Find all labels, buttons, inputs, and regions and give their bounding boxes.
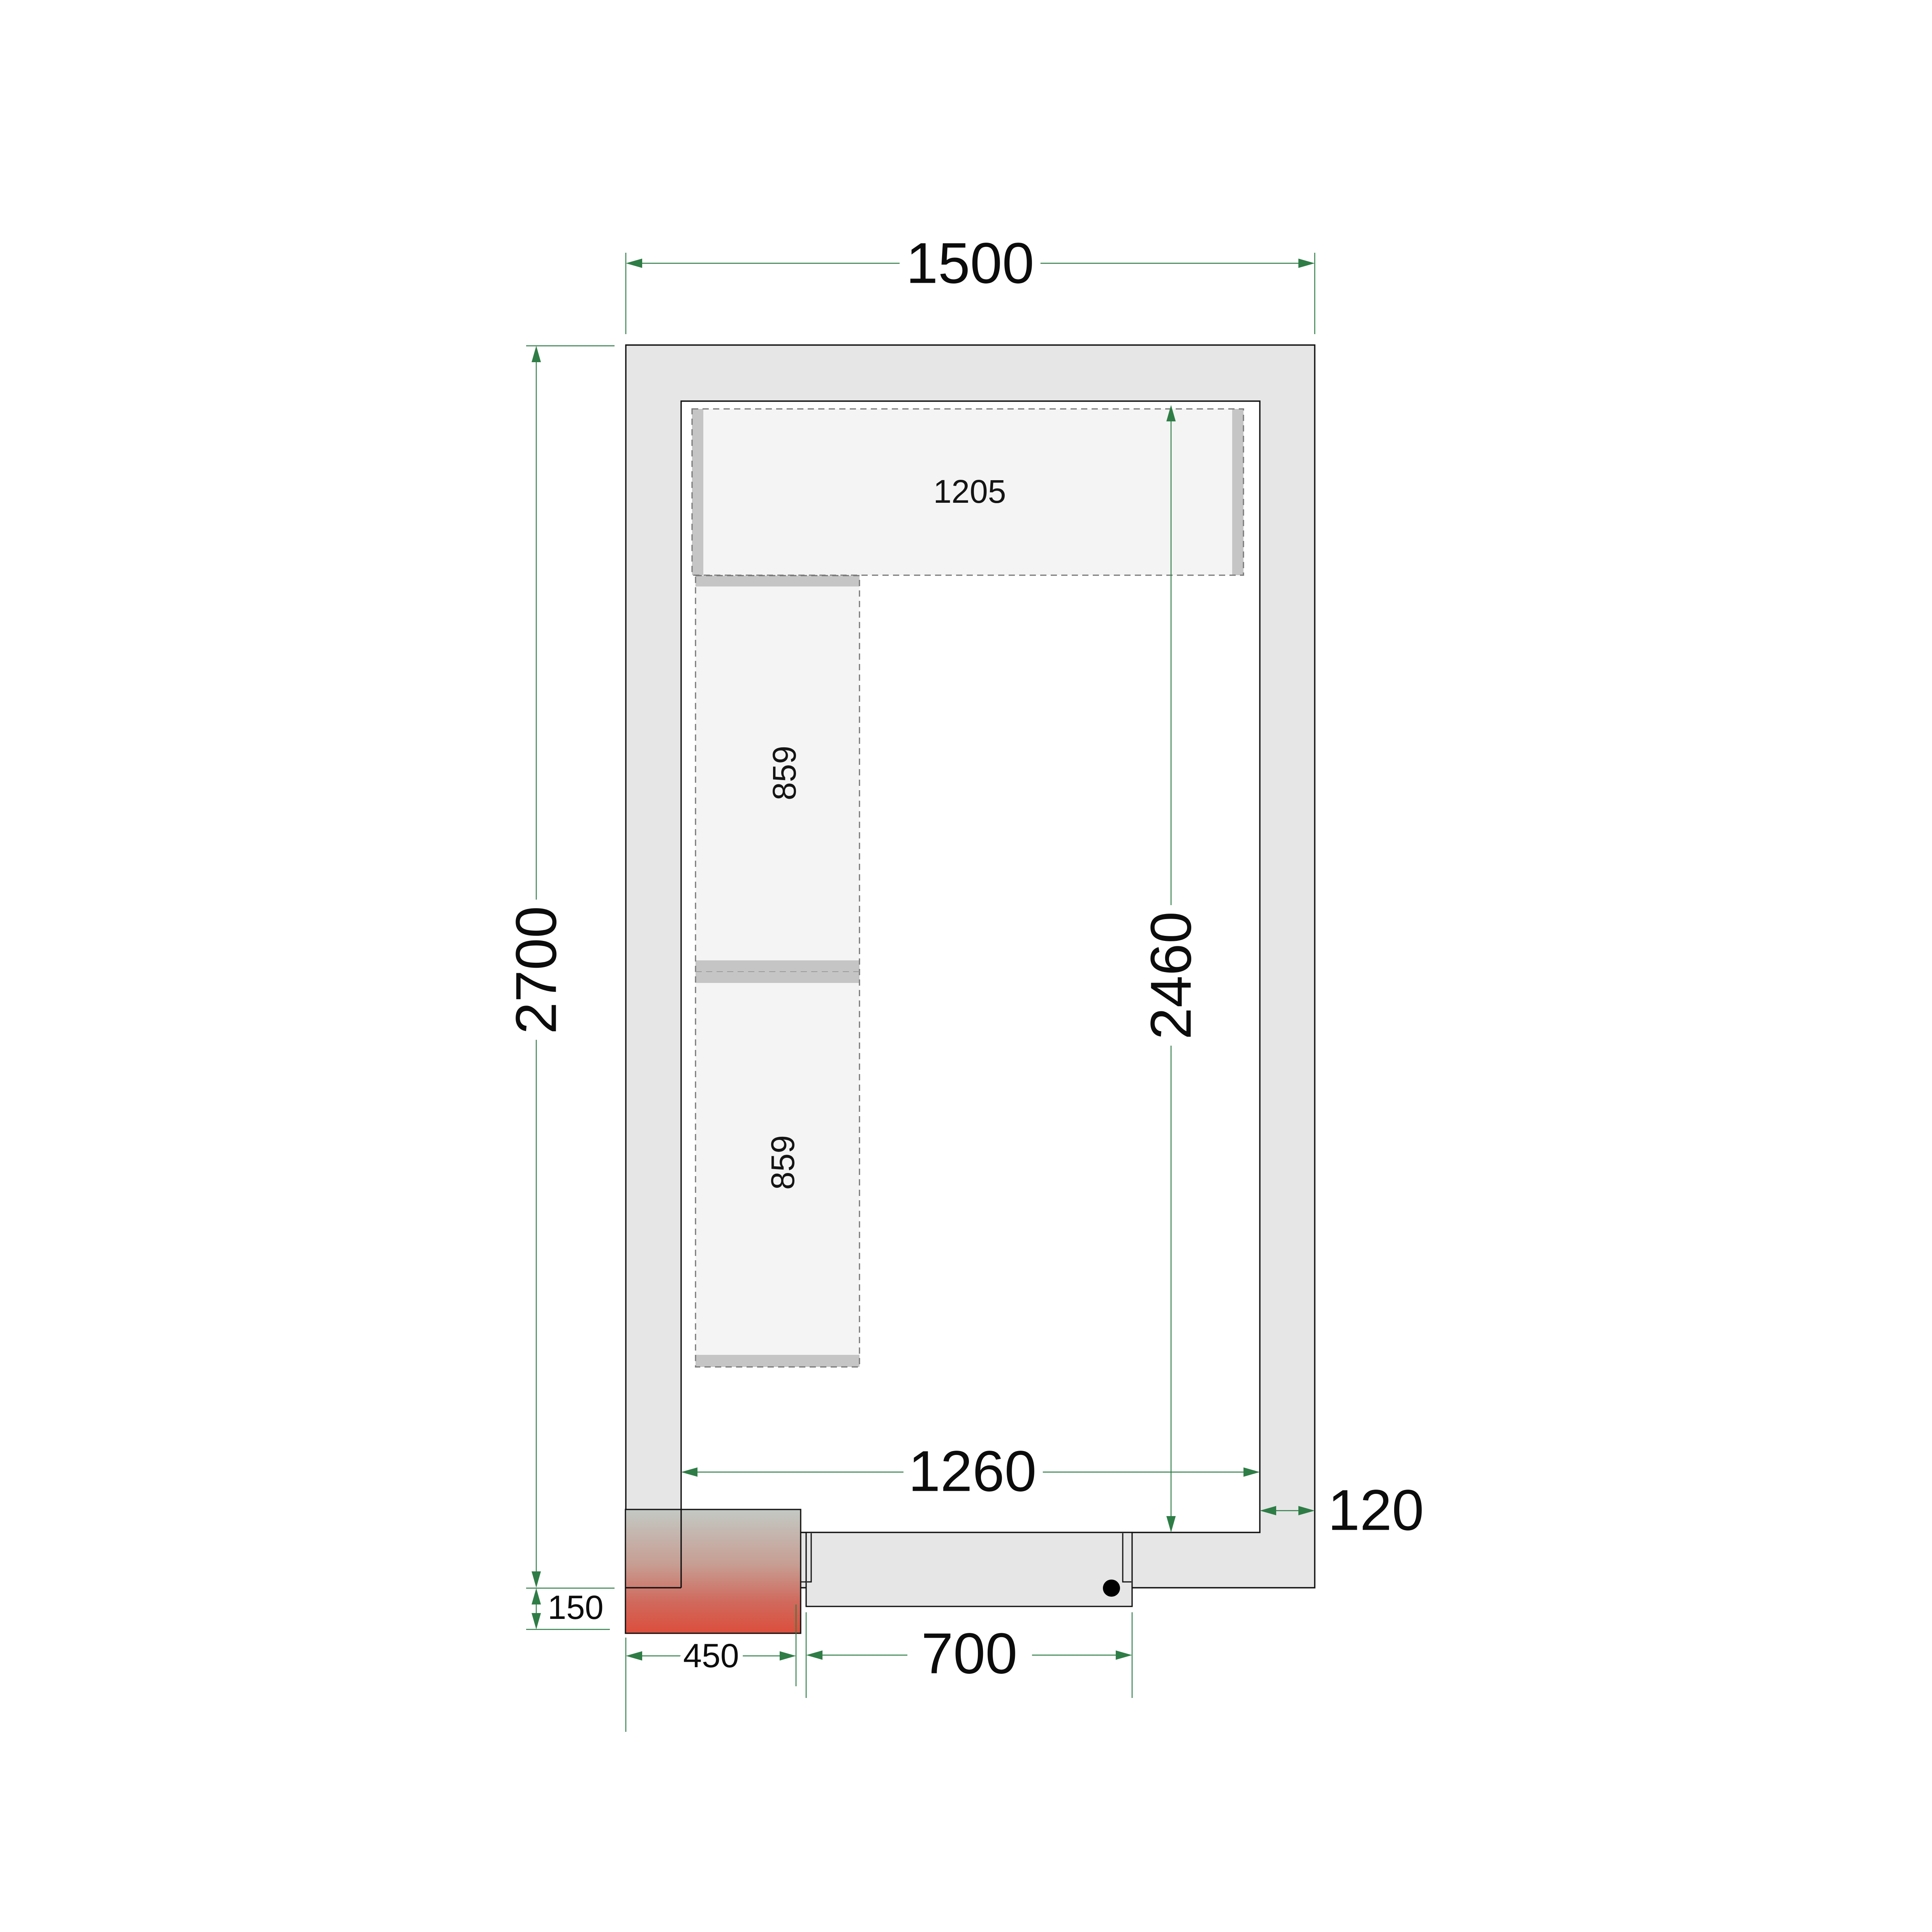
dimension-inner-depth-label: 2460 — [1139, 911, 1203, 1039]
arrowhead-up — [532, 346, 541, 362]
shelf-top-end-bar-right — [1232, 409, 1243, 575]
arrowhead-down — [1166, 1516, 1176, 1532]
dimension-outer-depth: 2700 — [504, 346, 615, 1588]
arrowhead-up — [532, 1588, 541, 1604]
dimension-unit-overhang-label: 150 — [548, 1589, 604, 1626]
dimension-outer-depth-label: 2700 — [504, 906, 569, 1034]
dimension-unit-width-label: 450 — [683, 1637, 739, 1675]
shelf-top-length-label: 1205 — [933, 473, 1006, 510]
shelf-left: 859 859 — [696, 576, 859, 1367]
arrowhead-left — [681, 1467, 697, 1477]
door-hinge-dot — [1103, 1580, 1120, 1597]
shelf-left-lower-length-label: 859 — [764, 1135, 801, 1190]
dimension-outer-width: 1500 — [626, 231, 1315, 335]
shelf-left-upper-length-label: 859 — [766, 746, 803, 800]
shelf-top-end-bar-left — [692, 409, 703, 575]
arrowhead-down — [532, 1613, 541, 1629]
dimension-unit-overhang: 150 — [526, 1588, 615, 1629]
shelf-left-end-bar-top — [696, 576, 859, 586]
arrowhead-right — [1116, 1650, 1132, 1660]
arrowhead-left — [626, 1651, 642, 1661]
door-leaf — [806, 1532, 1132, 1606]
dimension-door-opening-label: 700 — [921, 1622, 1018, 1686]
arrowhead-right — [780, 1651, 796, 1661]
arrowhead-left — [626, 259, 642, 268]
dimension-wall-thickness-label: 120 — [1328, 1478, 1424, 1543]
dimension-inner-width-label: 1260 — [908, 1439, 1036, 1504]
arrowhead-right — [1298, 259, 1315, 268]
arrowhead-right — [1243, 1467, 1260, 1477]
dimension-inner-width: 1260 — [681, 1439, 1260, 1504]
cooling-unit-heater-box — [625, 1509, 801, 1633]
arrowhead-down — [532, 1571, 541, 1588]
shelf-top: 1205 — [692, 409, 1243, 575]
dimension-door-opening: 700 — [806, 1612, 1132, 1698]
dimension-outer-width-label: 1500 — [906, 231, 1034, 296]
floor-plan-canvas: 1205 859 859 1500 2700 2460 — [0, 0, 1932, 1932]
floor-plan-svg: 1205 859 859 1500 2700 2460 — [0, 0, 1932, 1932]
shelf-left-end-bar-bottom — [696, 1355, 859, 1367]
arrowhead-left — [806, 1650, 822, 1660]
